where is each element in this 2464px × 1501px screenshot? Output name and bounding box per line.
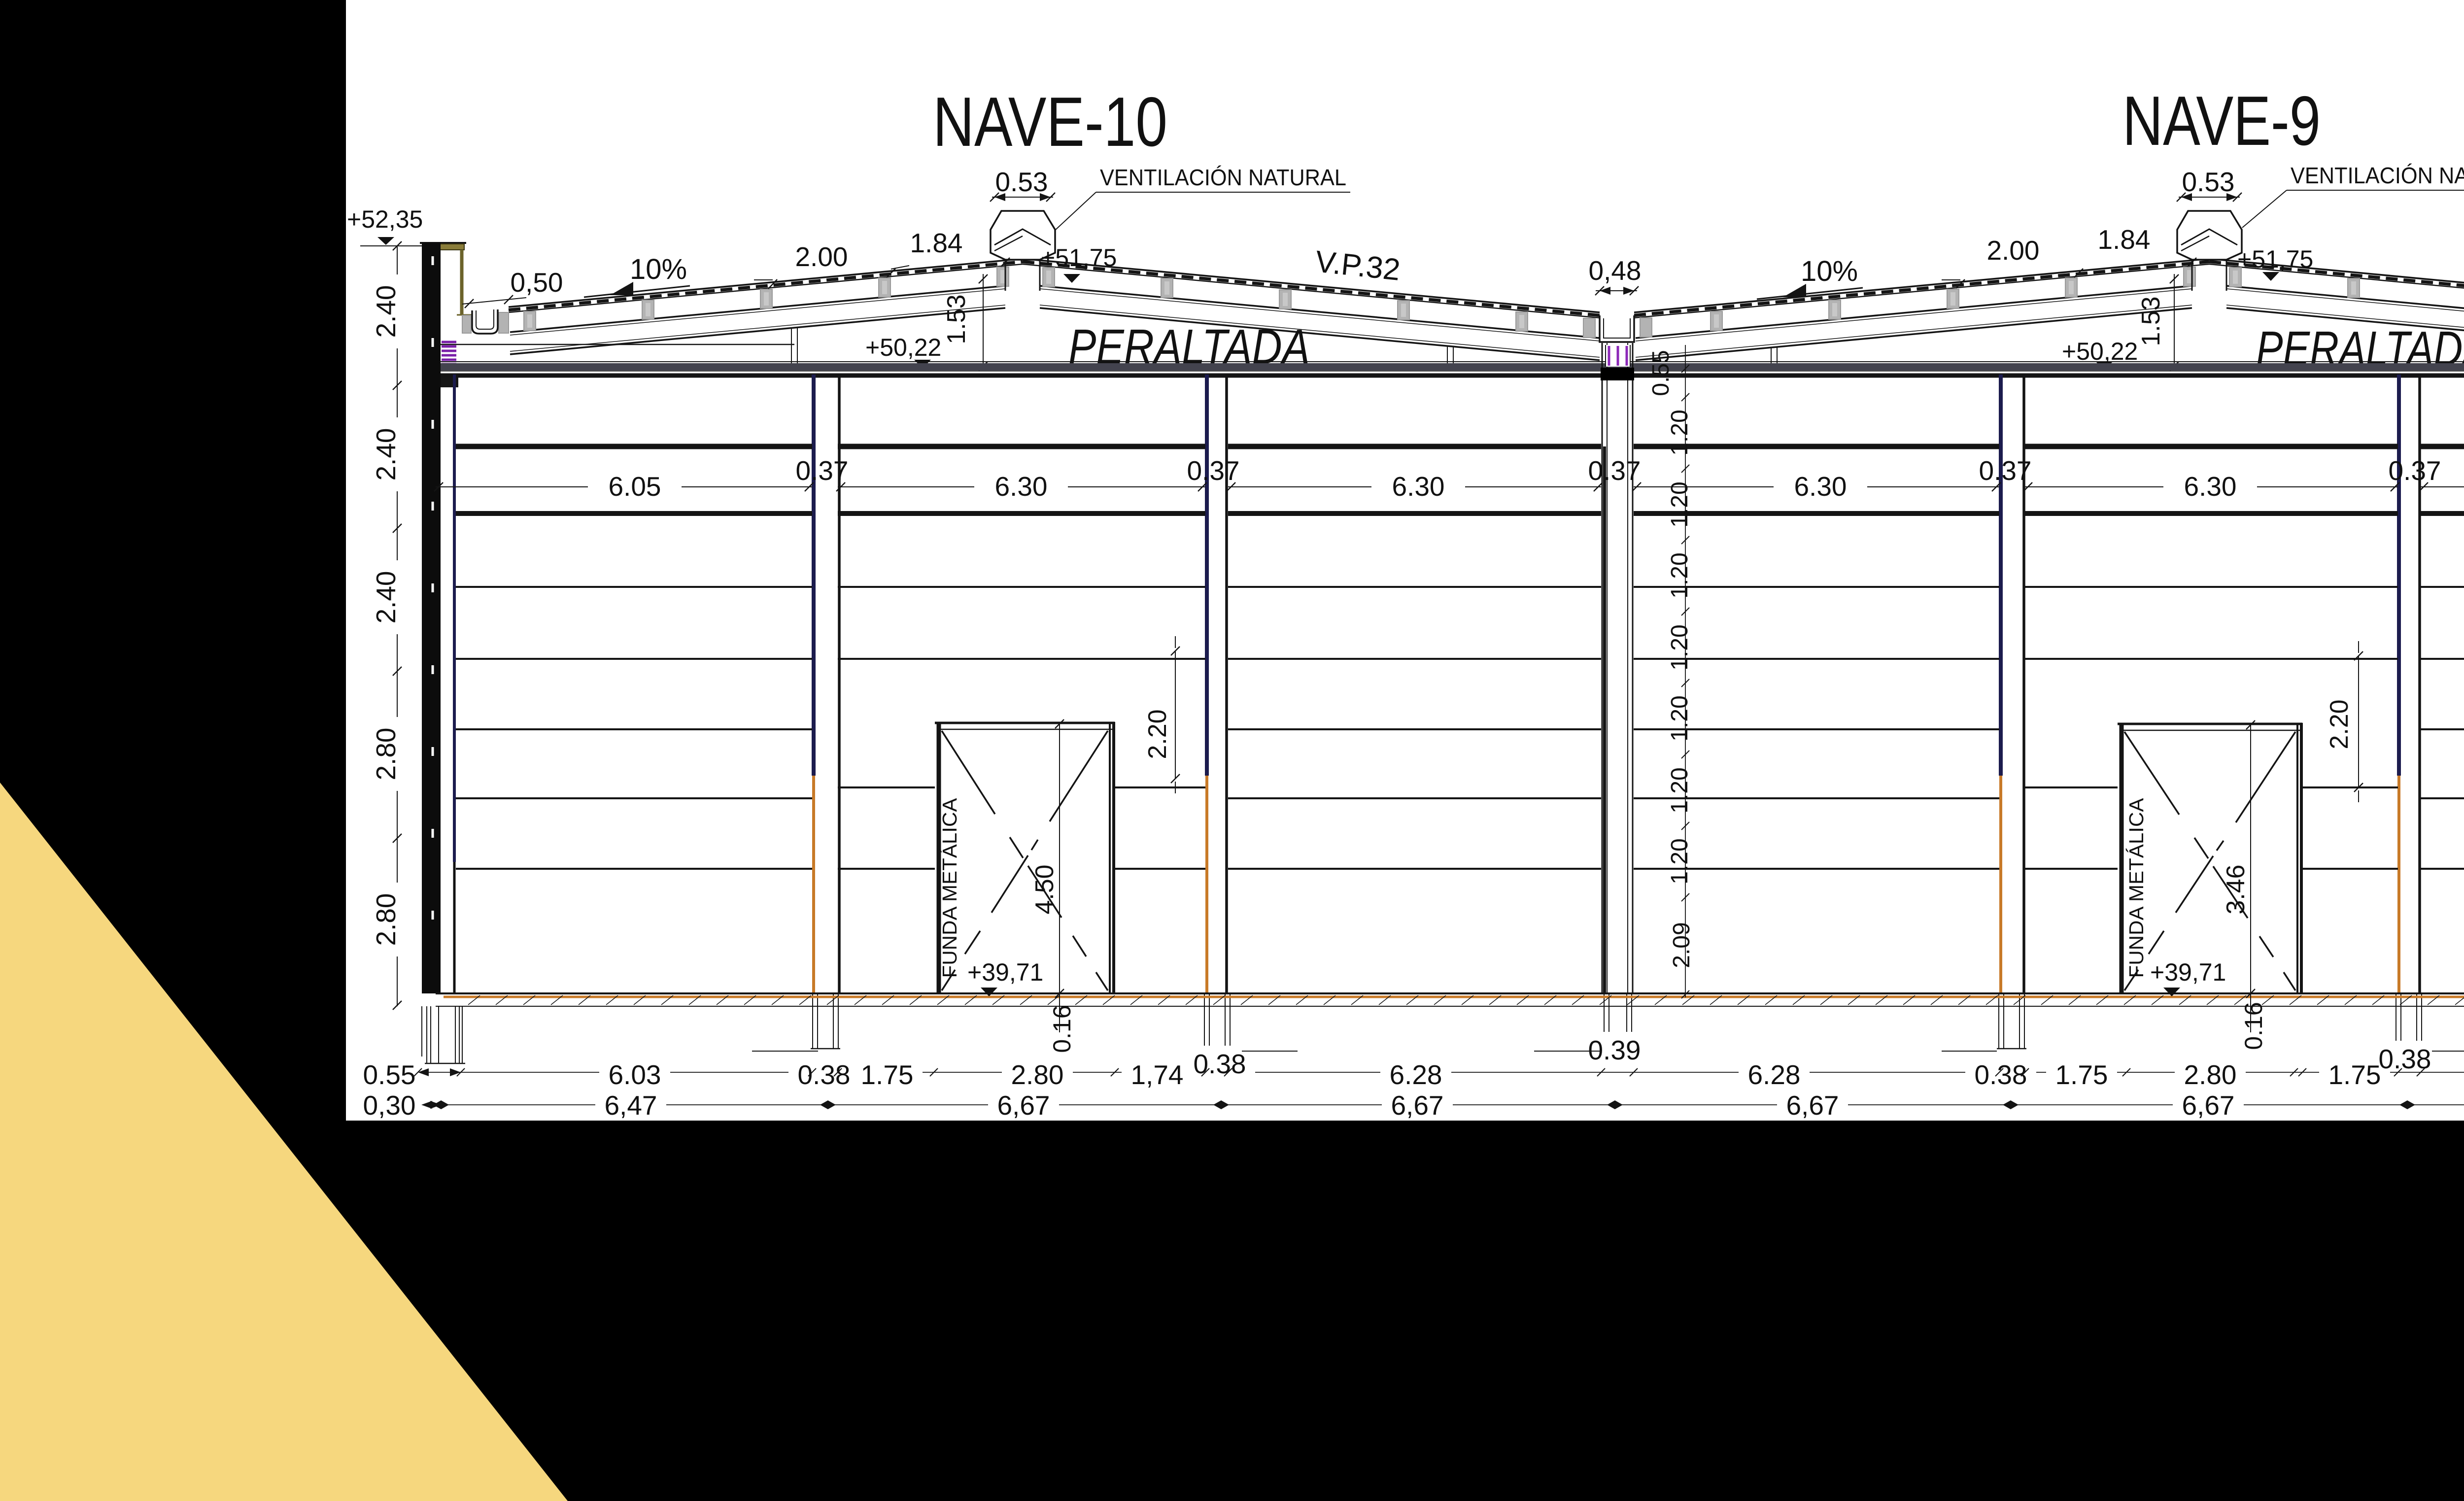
svg-text:0.37: 0.37	[1588, 455, 1641, 486]
svg-text:+39,71: +39,71	[967, 958, 1043, 986]
svg-text:VENTILACIÓN NATURAL: VENTILACIÓN NATURAL	[1100, 165, 1346, 190]
svg-text:10%: 10%	[630, 253, 687, 285]
svg-text:1.20: 1.20	[1667, 624, 1693, 670]
svg-text:6,67: 6,67	[1786, 1090, 1839, 1121]
svg-text:6.30: 6.30	[994, 471, 1047, 502]
svg-text:2.20: 2.20	[1143, 709, 1172, 759]
svg-text:1.75: 1.75	[860, 1059, 913, 1090]
svg-text:0.53: 0.53	[995, 167, 1048, 197]
svg-text:2.40: 2.40	[371, 428, 401, 480]
svg-text:1.75: 1.75	[2055, 1059, 2108, 1090]
svg-text:VENTILACIÓN NATURAL: VENTILACIÓN NATURAL	[2291, 163, 2464, 188]
svg-text:0.16: 0.16	[2240, 1002, 2267, 1050]
svg-text:+50,22: +50,22	[2062, 338, 2138, 365]
svg-text:1.20: 1.20	[1667, 481, 1693, 527]
svg-text:2.09: 2.09	[1669, 922, 1695, 968]
svg-text:2.80: 2.80	[1011, 1059, 1063, 1090]
svg-text:6,67: 6,67	[997, 1090, 1050, 1121]
svg-text:1,74: 1,74	[1130, 1059, 1183, 1090]
svg-text:FUNDA METÁLICA: FUNDA METÁLICA	[2125, 798, 2148, 978]
svg-text:2.00: 2.00	[1986, 235, 2039, 266]
svg-text:0.38: 0.38	[1974, 1059, 2027, 1090]
svg-text:1.75: 1.75	[2328, 1059, 2381, 1090]
svg-text:4.50: 4.50	[1030, 864, 1059, 914]
svg-text:0.37: 0.37	[795, 455, 848, 486]
svg-text:1.20: 1.20	[1667, 552, 1693, 598]
svg-text:NAVE-10: NAVE-10	[933, 83, 1167, 161]
svg-text:+51,75: +51,75	[2237, 245, 2313, 273]
svg-text:0.39: 0.39	[1588, 1035, 1641, 1065]
svg-text:6.30: 6.30	[2184, 471, 2236, 502]
svg-text:6.30: 6.30	[1392, 471, 1444, 502]
svg-text:2.80: 2.80	[371, 893, 401, 946]
svg-text:+50,22: +50,22	[865, 334, 941, 361]
svg-text:0.38: 0.38	[1193, 1049, 1246, 1079]
svg-text:0,30: 0,30	[363, 1090, 415, 1121]
svg-text:+39,71: +39,71	[2150, 958, 2226, 986]
svg-text:0.37: 0.37	[1979, 455, 2031, 486]
svg-text:0,48: 0,48	[1588, 255, 1641, 286]
svg-text:10%: 10%	[1801, 255, 1858, 287]
svg-text:1.84: 1.84	[2097, 224, 2150, 255]
svg-text:0.55: 0.55	[363, 1059, 415, 1090]
svg-text:0,50: 0,50	[510, 267, 563, 298]
svg-text:0.38: 0.38	[797, 1059, 850, 1090]
svg-text:1.20: 1.20	[1667, 695, 1693, 741]
svg-text:0.37: 0.37	[1187, 455, 1239, 486]
svg-text:2.80: 2.80	[2184, 1059, 2236, 1090]
svg-text:6.28: 6.28	[1389, 1059, 1442, 1090]
svg-text:6.03: 6.03	[608, 1059, 661, 1090]
svg-text:2.40: 2.40	[371, 285, 401, 338]
svg-text:2.80: 2.80	[371, 727, 401, 780]
svg-text:1.53: 1.53	[942, 294, 971, 344]
svg-text:+51,75: +51,75	[1041, 244, 1117, 272]
svg-text:6,67: 6,67	[2182, 1090, 2234, 1121]
svg-text:0.16: 0.16	[1048, 1005, 1076, 1053]
svg-text:NAVE-9: NAVE-9	[2122, 82, 2321, 160]
svg-text:1.20: 1.20	[1667, 409, 1693, 455]
svg-text:3.46: 3.46	[2222, 864, 2250, 914]
svg-text:+52,35: +52,35	[347, 205, 423, 233]
svg-text:FUNDA METÁLICA: FUNDA METÁLICA	[938, 798, 961, 978]
svg-text:0.53: 0.53	[2182, 167, 2234, 197]
svg-text:2.00: 2.00	[795, 241, 848, 272]
svg-text:6.05: 6.05	[608, 471, 661, 502]
svg-text:6,47: 6,47	[604, 1090, 657, 1121]
svg-text:0.37: 0.37	[2388, 455, 2441, 486]
svg-text:1.53: 1.53	[2137, 296, 2165, 346]
svg-text:0.55: 0.55	[1648, 350, 1674, 396]
svg-text:2.40: 2.40	[371, 571, 401, 623]
svg-text:6.28: 6.28	[1747, 1059, 1800, 1090]
svg-text:6,67: 6,67	[1391, 1090, 1443, 1121]
svg-text:6.30: 6.30	[1794, 471, 1847, 502]
svg-text:1.20: 1.20	[1667, 838, 1693, 884]
svg-text:1.20: 1.20	[1667, 767, 1693, 813]
svg-text:2.20: 2.20	[2325, 699, 2354, 749]
svg-text:1.84: 1.84	[910, 228, 962, 258]
